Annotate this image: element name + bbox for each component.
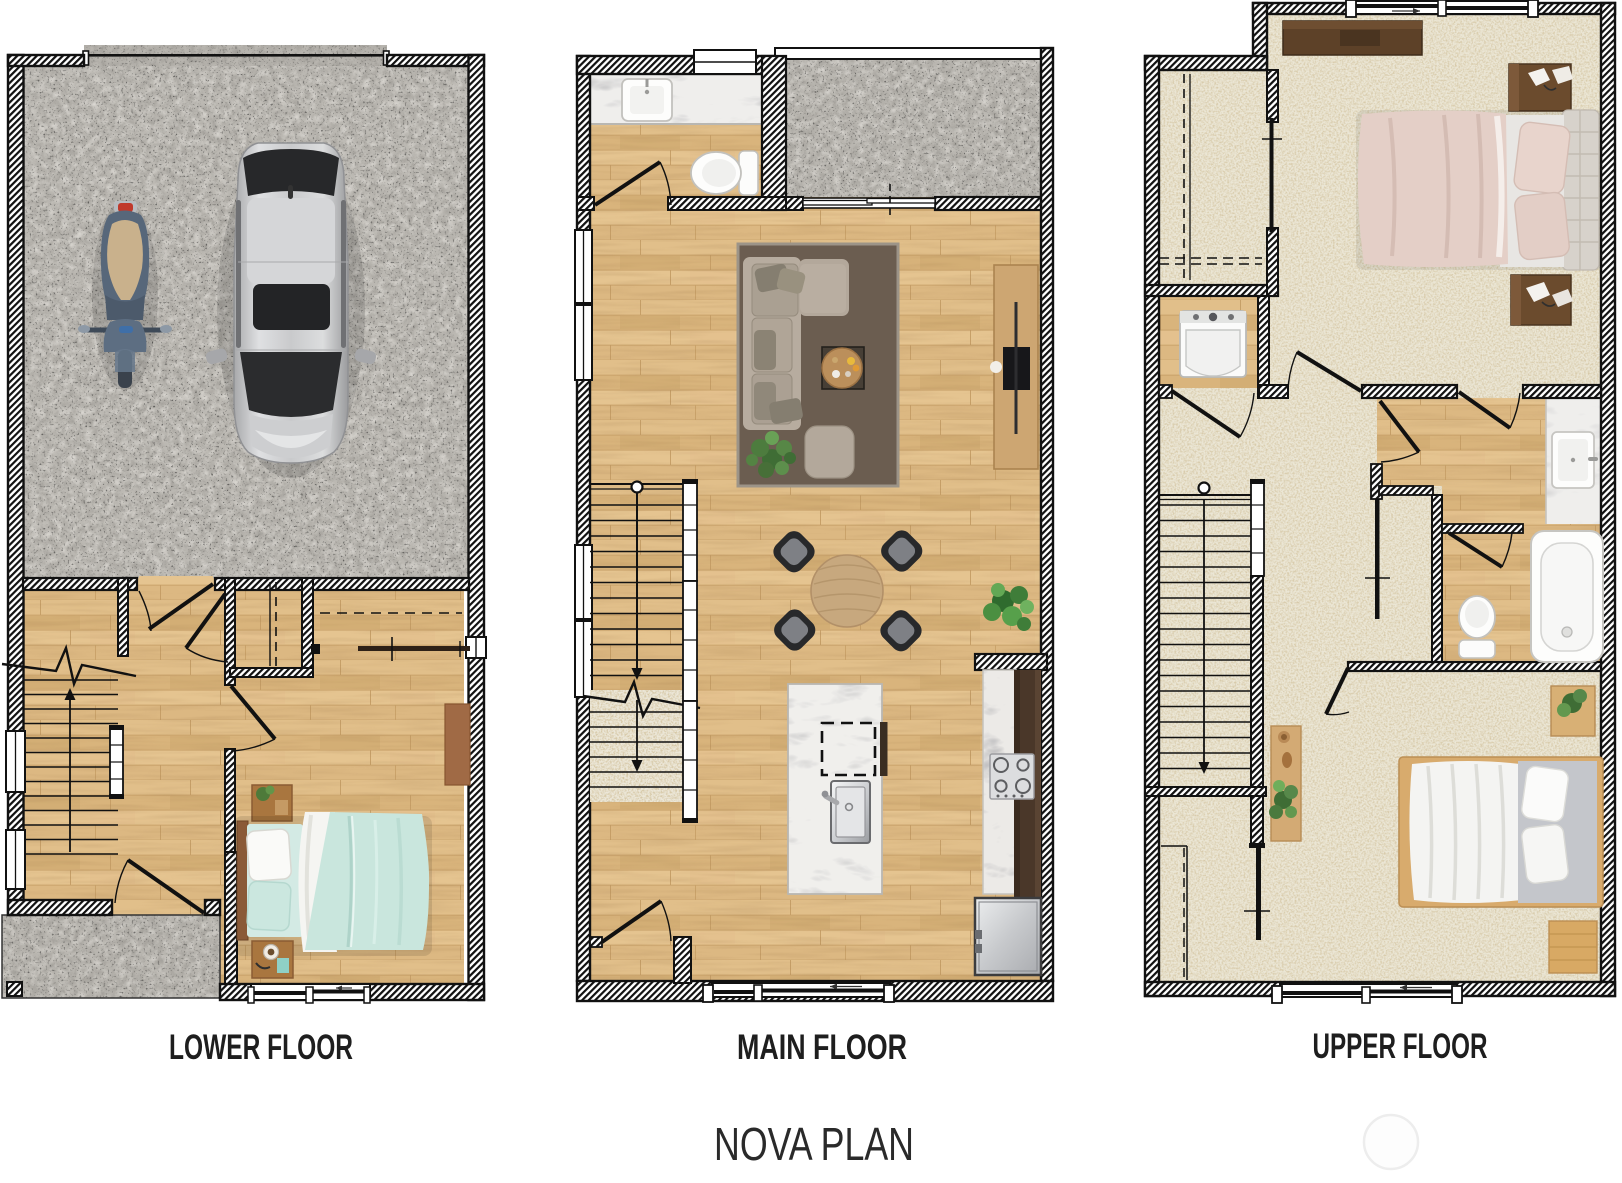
svg-text:NOVA PLAN: NOVA PLAN <box>714 1118 914 1170</box>
svg-text:LOWER FLOOR: LOWER FLOOR <box>169 1028 353 1067</box>
svg-text:MAIN FLOOR: MAIN FLOOR <box>737 1028 907 1067</box>
svg-text:UPPER FLOOR: UPPER FLOOR <box>1313 1027 1488 1066</box>
